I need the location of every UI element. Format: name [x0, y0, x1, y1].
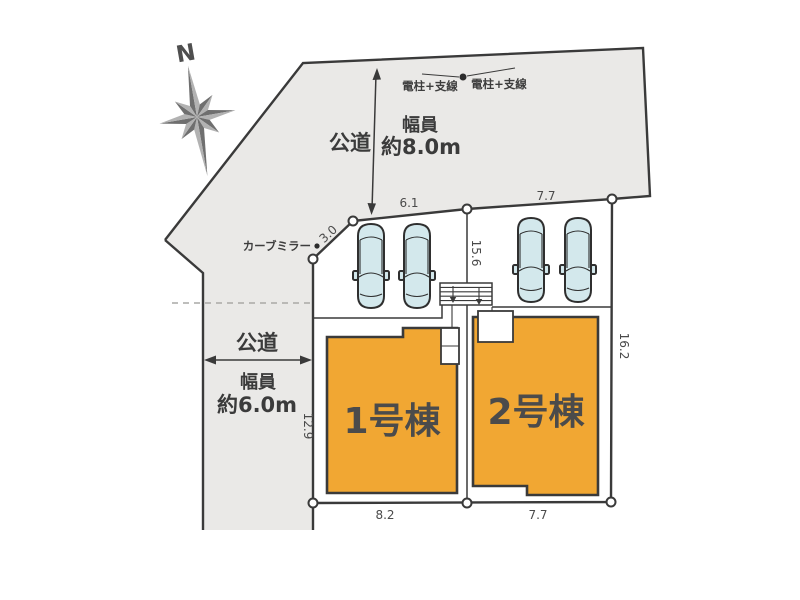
top-road-width-caption: 幅員 [402, 114, 438, 136]
stairs-icon [440, 283, 492, 305]
survey-point-marker [349, 217, 358, 226]
dim-lot1-bottom: 8.2 [375, 508, 394, 522]
site-plan-canvas: 1号棟 2号棟 N 公道 幅員 約8.0m [0, 0, 800, 600]
road-border-left [165, 240, 203, 530]
car-icon [513, 218, 549, 302]
dim-lot2-bottom: 7.7 [528, 508, 547, 522]
dim-lot1-west: 12.9 [301, 413, 315, 440]
car-icon [353, 224, 389, 308]
survey-point-marker [309, 255, 318, 264]
survey-point-marker [607, 498, 616, 507]
compass-north-label: N [174, 39, 197, 68]
curve-mirror-label: カーブミラー [243, 239, 311, 253]
utility-pole-label-left: 電柱+支線 [402, 79, 458, 93]
utility-pole-dot [460, 74, 467, 81]
site-plan-drawing: 1号棟 2号棟 N 公道 幅員 約8.0m [0, 0, 800, 600]
building-1-label: 1号棟 [343, 401, 441, 442]
survey-point-marker [608, 195, 617, 204]
survey-point-marker [463, 499, 472, 508]
utility-pole-label-right: 電柱+支線 [471, 77, 527, 91]
building-2-label: 2号棟 [487, 392, 585, 433]
dim-lot1-top: 6.1 [399, 196, 418, 210]
top-road-label: 公道 [329, 131, 371, 155]
building-2-porch [478, 311, 513, 342]
dim-lot2-top: 7.7 [536, 189, 555, 203]
dim-lot2-east: 16.2 [617, 333, 631, 360]
curve-mirror-dot [314, 243, 319, 248]
left-road-label: 公道 [236, 331, 278, 355]
top-road-width-value: 約8.0m [381, 135, 461, 159]
left-road-width-caption: 幅員 [240, 371, 276, 393]
car-icon [399, 224, 435, 308]
survey-point-marker [463, 205, 472, 214]
left-road-width-value: 約6.0m [217, 393, 297, 417]
survey-point-marker [309, 499, 318, 508]
dim-center-boundary: 15.6 [469, 240, 483, 267]
car-icon [560, 218, 596, 302]
